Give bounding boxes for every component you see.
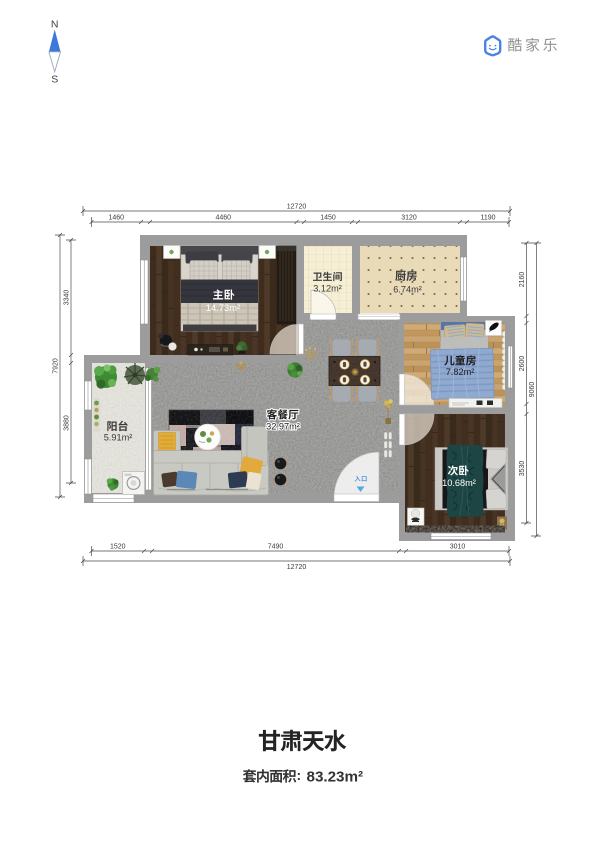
- svg-text:83.23m²: 83.23m²: [307, 769, 364, 786]
- svg-text:2600: 2600: [519, 356, 526, 372]
- svg-text:3.12m²: 3.12m²: [313, 284, 342, 294]
- svg-text:1450: 1450: [320, 215, 336, 222]
- svg-text:10.68m²: 10.68m²: [442, 478, 476, 488]
- svg-text:3120: 3120: [401, 215, 417, 222]
- svg-text:3340: 3340: [64, 290, 71, 306]
- svg-text:1520: 1520: [110, 544, 126, 551]
- svg-text:32.97m²: 32.97m²: [266, 422, 300, 432]
- svg-text:3880: 3880: [64, 415, 71, 431]
- svg-text:6.74m²: 6.74m²: [393, 285, 422, 295]
- svg-text:1190: 1190: [480, 215, 495, 222]
- svg-text:3010: 3010: [450, 544, 466, 551]
- svg-text:7920: 7920: [53, 358, 60, 374]
- svg-text:2160: 2160: [519, 272, 526, 288]
- svg-text:4460: 4460: [215, 215, 231, 222]
- svg-text:7490: 7490: [268, 544, 284, 551]
- svg-text:N: N: [51, 19, 59, 31]
- svg-text:5.91m²: 5.91m²: [104, 433, 133, 443]
- svg-text:12720: 12720: [287, 564, 307, 571]
- svg-text::: :: [297, 767, 302, 783]
- svg-text:1460: 1460: [108, 215, 124, 222]
- svg-text:14.73m²: 14.73m²: [206, 302, 240, 313]
- svg-text:7.82m²: 7.82m²: [446, 367, 475, 377]
- svg-text:12720: 12720: [287, 204, 307, 211]
- svg-text:3530: 3530: [519, 461, 526, 477]
- svg-text:9060: 9060: [529, 382, 536, 398]
- svg-text:S: S: [51, 74, 58, 86]
